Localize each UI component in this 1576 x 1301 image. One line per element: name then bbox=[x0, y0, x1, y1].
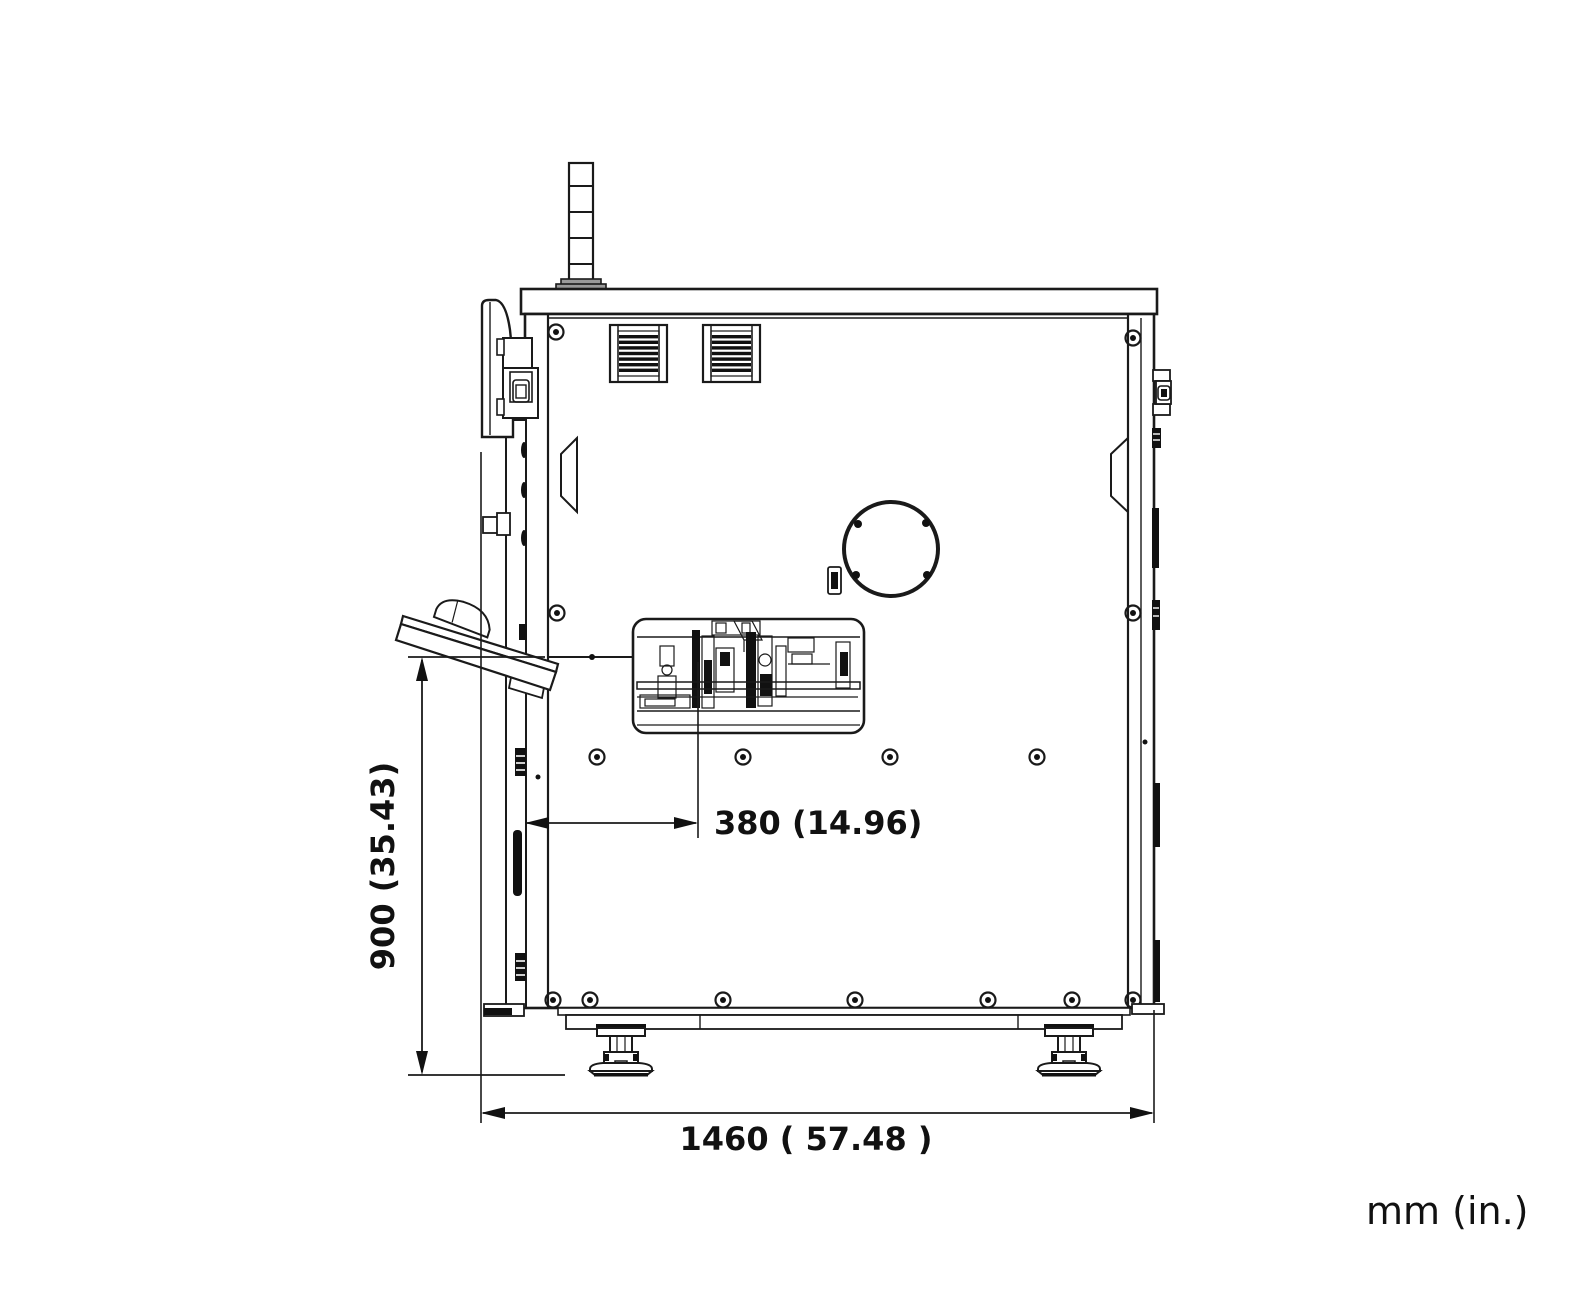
door-hinge-icon bbox=[515, 953, 526, 981]
units-label: mm (in.) bbox=[1366, 1189, 1528, 1233]
leveling-foot-right bbox=[1038, 1028, 1100, 1077]
cabinet-top-cap bbox=[521, 289, 1157, 314]
side-tab bbox=[483, 517, 498, 533]
leveling-foot-left bbox=[590, 1028, 652, 1077]
technical-drawing-canvas: 900 (35.43) 380 (14.96) 1460 ( 57.48 ) m… bbox=[0, 0, 1576, 1301]
front-door-strip bbox=[483, 420, 527, 1008]
arrowhead-right-icon bbox=[1130, 1107, 1154, 1119]
machine-dimension-drawing: 900 (35.43) 380 (14.96) 1460 ( 57.48 ) m… bbox=[0, 0, 1576, 1301]
door-hinge-icon bbox=[515, 748, 526, 776]
dimension-offset-label: 380 (14.96) bbox=[714, 804, 922, 842]
arrowhead-down-icon bbox=[416, 1051, 428, 1075]
monitor-mount-bracket bbox=[497, 338, 538, 418]
base-and-feet bbox=[484, 1004, 1164, 1077]
vent-grille-icon bbox=[610, 325, 667, 382]
dimension-width-label: 1460 ( 57.48 ) bbox=[680, 1120, 933, 1158]
vent-grille-icon bbox=[703, 325, 760, 382]
io-connector bbox=[828, 567, 841, 594]
dimension-height-label: 900 (35.43) bbox=[364, 762, 402, 970]
arrowhead-left-icon bbox=[481, 1107, 505, 1119]
arrowhead-up-icon bbox=[416, 657, 428, 681]
machine-cabinet bbox=[396, 163, 1171, 1077]
signal-tower bbox=[556, 163, 606, 289]
